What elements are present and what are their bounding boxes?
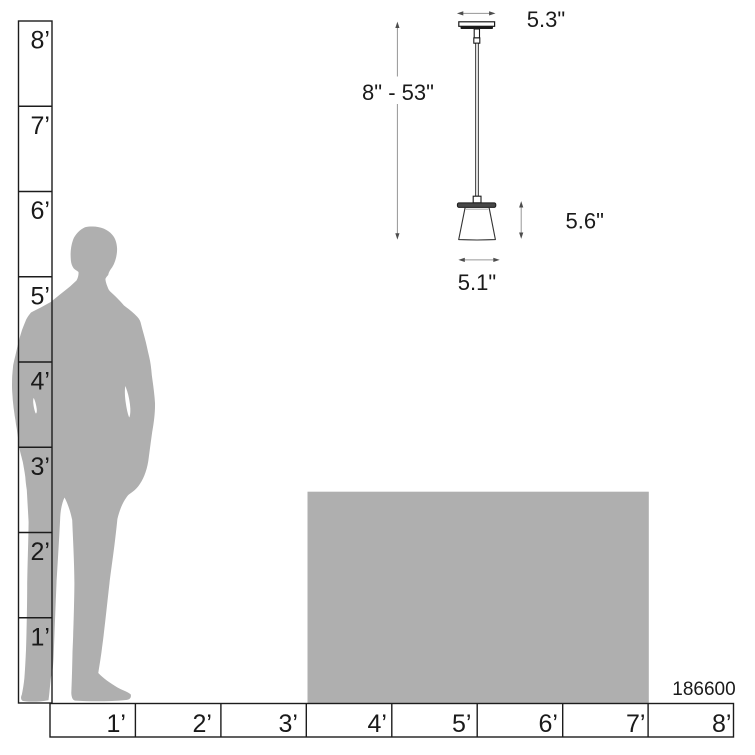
svg-text:5.1": 5.1" [458,270,496,295]
svg-text:2’: 2’ [31,538,50,566]
svg-text:1’: 1’ [107,710,126,738]
svg-text:7’: 7’ [31,112,50,140]
svg-text:5.3": 5.3" [527,7,565,32]
svg-text:5’: 5’ [452,710,471,738]
svg-text:5’: 5’ [31,282,50,310]
svg-text:186600: 186600 [672,679,735,700]
svg-text:2’: 2’ [193,710,212,738]
svg-text:1’: 1’ [31,623,50,651]
svg-text:4’: 4’ [31,368,50,396]
svg-text:5.6": 5.6" [566,208,604,233]
svg-text:4’: 4’ [368,710,387,738]
svg-text:3’: 3’ [31,453,50,481]
svg-text:8’: 8’ [31,27,50,55]
svg-text:8’: 8’ [712,710,731,738]
svg-text:8" - 53": 8" - 53" [362,80,434,105]
svg-text:3’: 3’ [279,710,298,738]
svg-text:6’: 6’ [539,710,558,738]
svg-text:7’: 7’ [626,710,645,738]
svg-text:6’: 6’ [31,197,50,225]
